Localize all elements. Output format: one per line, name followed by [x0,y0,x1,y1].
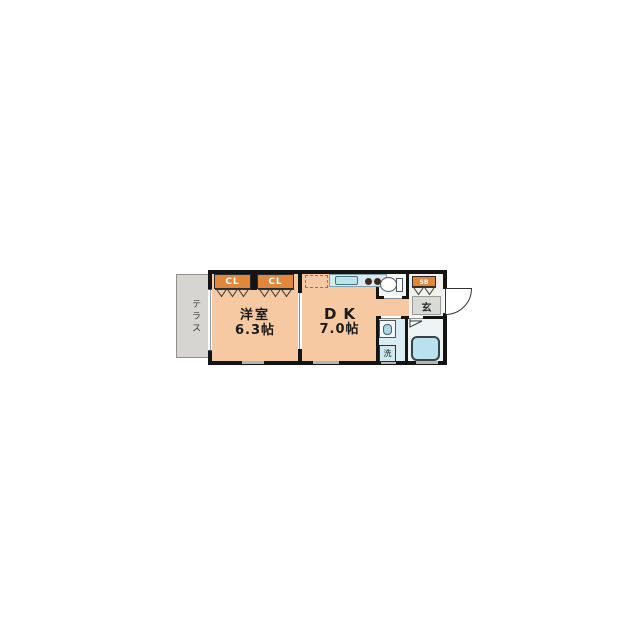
washroom-door [381,316,401,319]
sliding-door-leaf [299,293,300,349]
bathroom-door-swing [409,319,425,331]
refrigerator-space [305,275,328,288]
dk-area: 7.0帖 [302,322,377,337]
toilet-tank-icon [396,278,403,292]
laundry-label: 洗 [384,349,392,358]
dk-name: DK [302,306,377,322]
kitchen-sink [335,276,358,285]
bathtub-icon [411,336,440,361]
washbasin-bowl-icon [383,324,392,335]
wall-washroom-bath [405,319,408,363]
window-yoshitsu [242,361,264,364]
terrace-label: テラス [186,292,202,342]
toilet-door [384,296,402,299]
shoe-box-label: SB [420,279,429,286]
terrace-window-frame [210,290,211,350]
wall-right-upper [443,270,447,289]
window-dk [313,361,339,364]
washing-machine-space: 洗 [379,345,396,362]
floor-plan: テラス CL CL [0,0,640,640]
closet-left-label: CL [225,277,239,287]
shoe-box: SB [412,276,436,287]
window-bathroom [416,361,438,364]
closet-right-label: CL [268,277,282,287]
closet-right: CL [257,274,294,289]
western-room-area: 6.3帖 [212,323,298,338]
stove-burner-left-icon [365,278,372,285]
wall-right-lower [443,313,447,365]
western-room-name: 洋室 [212,308,298,323]
toilet-bowl-icon [380,277,397,292]
western-room-label: 洋室 6.3帖 [212,308,298,338]
front-door [445,288,473,316]
closet-right-folding-door [258,289,294,298]
entrance-label: 玄 [412,299,441,314]
closet-left-folding-door [215,289,251,298]
shoe-box-folding-door [412,287,436,296]
washbasin-icon [379,320,396,338]
closet-left: CL [214,274,251,289]
wall-toilet-right [406,274,409,299]
dk-label: DK 7.0帖 [302,306,377,337]
